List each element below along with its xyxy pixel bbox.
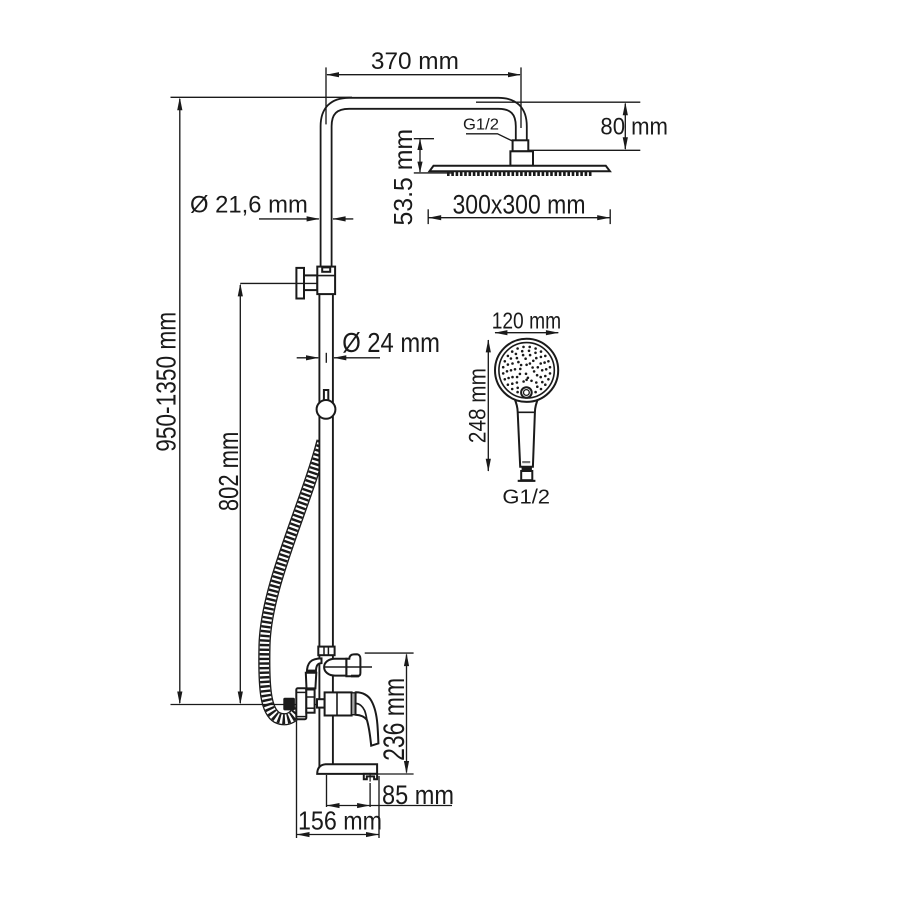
svg-text:53.5 mm: 53.5 mm: [388, 129, 418, 226]
svg-text:248 mm: 248 mm: [465, 368, 492, 443]
svg-text:G1/2: G1/2: [502, 486, 550, 508]
svg-text:80 mm: 80 mm: [600, 113, 668, 140]
svg-text:300x300 mm: 300x300 mm: [453, 189, 586, 219]
svg-text:G1/2: G1/2: [463, 117, 499, 134]
svg-text:370 mm: 370 mm: [371, 48, 459, 75]
svg-text:802 mm: 802 mm: [213, 432, 244, 512]
svg-text:236 mm: 236 mm: [378, 678, 411, 761]
svg-text:Ø 24 mm: Ø 24 mm: [342, 327, 440, 358]
svg-text:Ø 21,6 mm: Ø 21,6 mm: [190, 192, 308, 219]
svg-text:950-1350 mm: 950-1350 mm: [151, 312, 182, 452]
svg-text:156 mm: 156 mm: [298, 806, 382, 836]
svg-text:120 mm: 120 mm: [492, 308, 561, 334]
svg-text:85 mm: 85 mm: [382, 780, 454, 810]
